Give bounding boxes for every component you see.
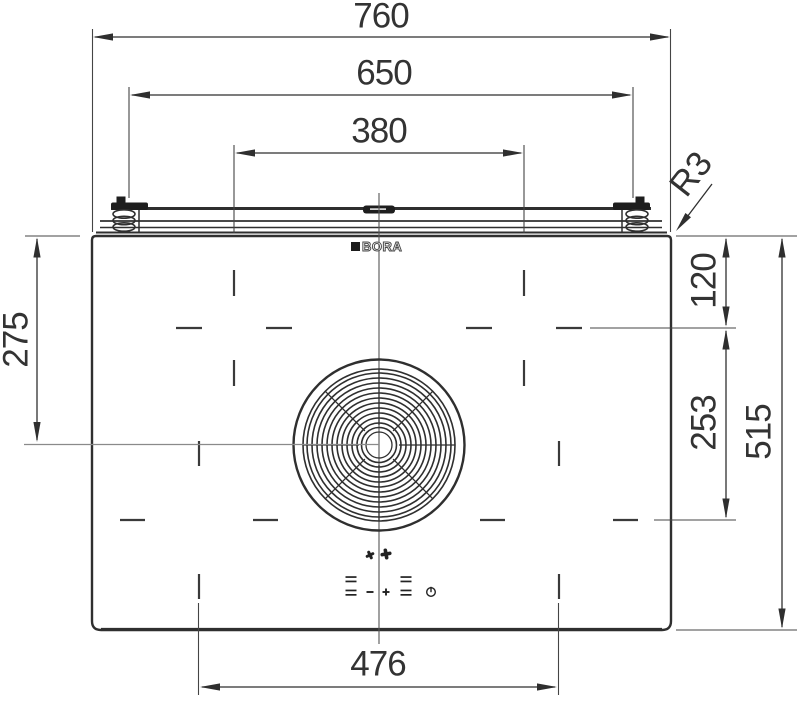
dimension-515 <box>778 238 785 629</box>
cooktop-glass-panel <box>92 236 671 630</box>
dim-label-clip-span: 650 <box>356 56 411 91</box>
dim-label-rear-zone-offset: 120 <box>687 253 722 308</box>
dim-label-front-zone-spacing: 476 <box>350 647 405 682</box>
dimension-476 <box>200 683 557 690</box>
mounting-clip-left <box>111 197 148 232</box>
dim-label-overall-width: 760 <box>353 0 408 34</box>
dim-label-zone-row-spacing: 253 <box>687 395 722 450</box>
brand-square-icon <box>351 242 360 251</box>
dim-label-fan-center-offset: 275 <box>0 312 34 367</box>
mounting-clip-right <box>613 197 650 232</box>
dim-label-overall-depth: 515 <box>742 404 777 459</box>
technical-drawing: 760 650 380 R3 275 120 253 515 476 BORA <box>0 0 800 704</box>
dim-label-rear-zone-spacing: 380 <box>351 114 406 149</box>
cooktop-outline <box>92 236 671 630</box>
brand-text: BORA <box>362 240 402 253</box>
drawing-canvas <box>0 0 800 704</box>
bora-logo: BORA <box>351 240 402 253</box>
